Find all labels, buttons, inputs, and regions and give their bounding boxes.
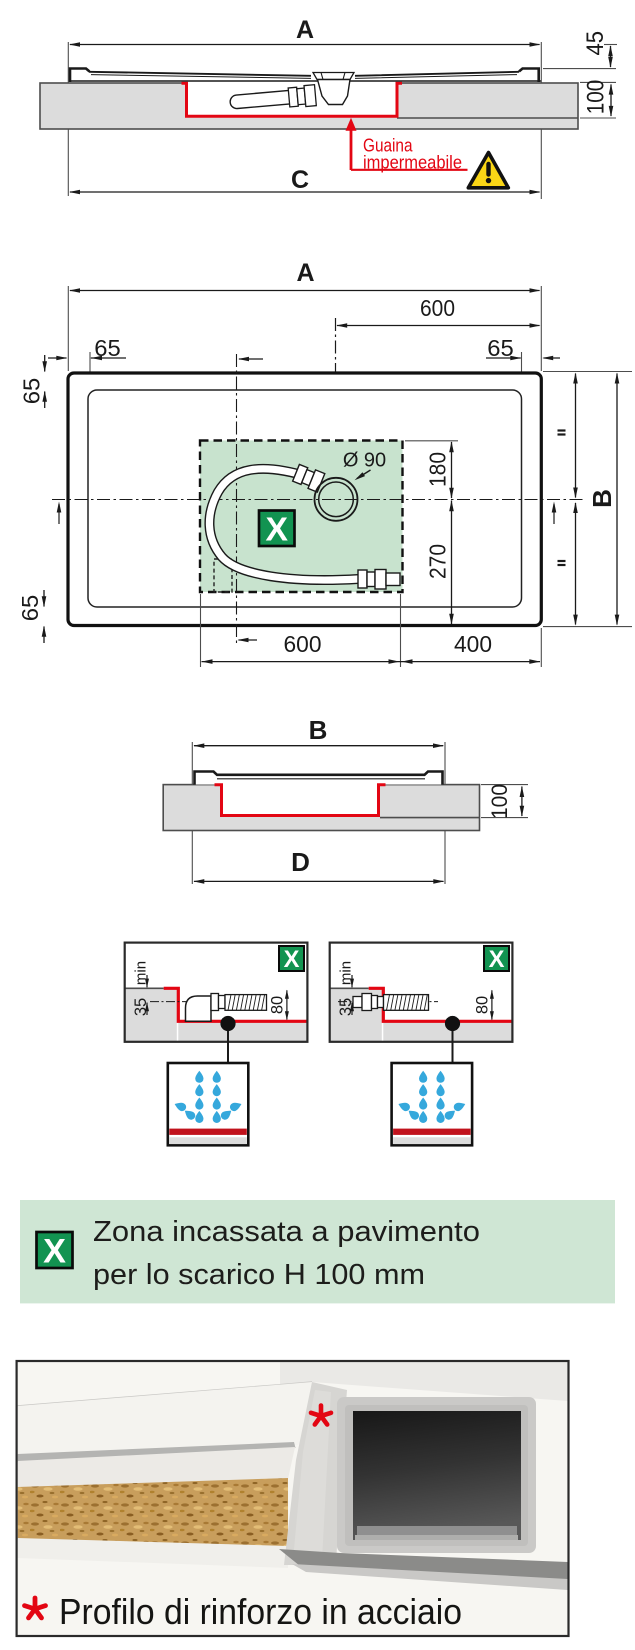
svg-text:B: B [587, 489, 617, 508]
svg-text:Ø 90: Ø 90 [343, 450, 386, 472]
svg-text:X: X [43, 1232, 66, 1270]
svg-text:X: X [284, 946, 300, 973]
svg-text:400: 400 [454, 631, 492, 657]
svg-text:65: 65 [17, 595, 43, 622]
svg-text:600: 600 [284, 631, 322, 657]
svg-text:180: 180 [425, 452, 451, 487]
svg-text:A: A [296, 259, 314, 287]
svg-text:600: 600 [420, 295, 455, 321]
svg-text:min: min [133, 961, 150, 985]
svg-text:100: 100 [582, 80, 609, 115]
svg-text:Zona incassata a pavimento: Zona incassata a pavimento [93, 1216, 480, 1248]
svg-text:X: X [266, 510, 289, 548]
svg-text:impermeabile: impermeabile [363, 152, 462, 172]
svg-text:D: D [291, 847, 310, 877]
svg-text:65: 65 [487, 335, 514, 361]
svg-text:80: 80 [268, 996, 286, 1014]
svg-text:45: 45 [582, 31, 609, 56]
svg-text:C: C [291, 166, 309, 194]
svg-text:270: 270 [425, 544, 451, 579]
svg-text:80: 80 [473, 996, 491, 1014]
svg-text:35: 35 [132, 998, 150, 1016]
svg-text:B: B [309, 715, 328, 745]
svg-text:A: A [296, 16, 314, 44]
svg-text:65: 65 [94, 335, 121, 361]
svg-text:65: 65 [19, 378, 45, 405]
svg-text:per lo scarico H 100 mm: per lo scarico H 100 mm [93, 1259, 425, 1291]
svg-text:Profilo di rinforzo in acciaio: Profilo di rinforzo in acciaio [59, 1591, 462, 1632]
svg-text:35: 35 [337, 998, 355, 1016]
svg-text:100: 100 [487, 784, 512, 819]
svg-text:X: X [489, 946, 505, 973]
svg-text:min: min [338, 961, 355, 985]
